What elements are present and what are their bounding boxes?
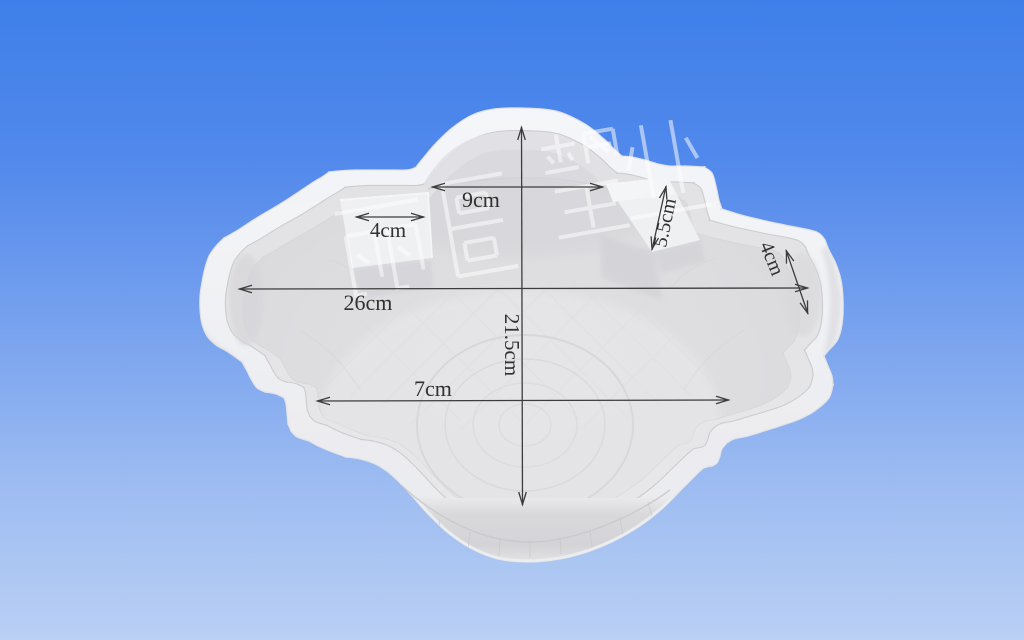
svg-text:26cm: 26cm [344,290,393,315]
svg-text:21.5cm: 21.5cm [500,314,524,376]
svg-text:9cm: 9cm [462,187,500,212]
svg-text:4cm: 4cm [370,218,406,242]
svg-text:7cm: 7cm [414,376,452,401]
